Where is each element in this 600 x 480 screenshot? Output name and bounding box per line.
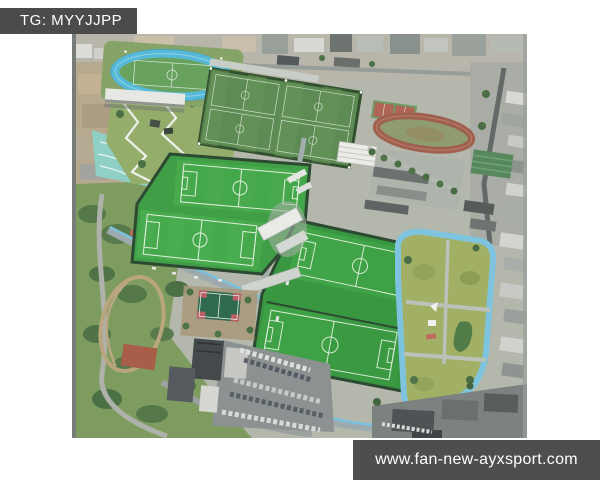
basketball-court-area	[180, 285, 257, 340]
photo-right-edge	[523, 34, 527, 438]
telegram-watermark: TG: MYYJJPP	[0, 8, 137, 34]
page: TG: MYYJJPP www.fan-new-ayxsport.com	[0, 0, 600, 480]
aerial-photo	[72, 34, 527, 438]
photo-left-edge	[72, 34, 76, 438]
aerial-photo-drawing	[72, 34, 527, 438]
website-watermark: www.fan-new-ayxsport.com	[353, 440, 600, 480]
